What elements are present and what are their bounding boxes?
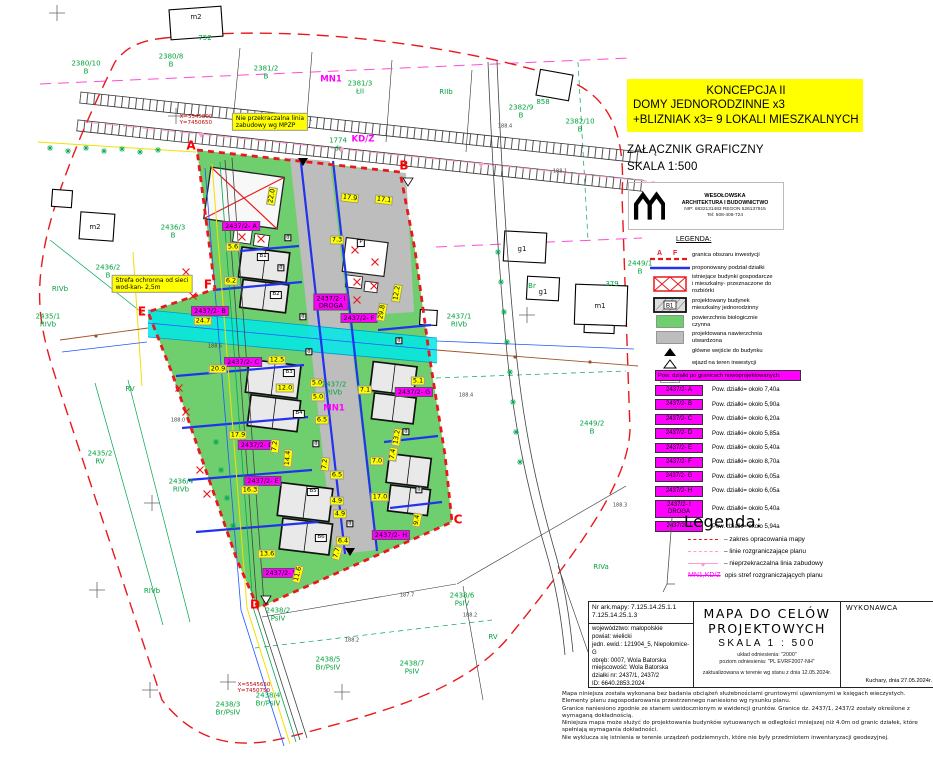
concept-line-2: DOMY JEDNORODZINNE x3 [633, 98, 859, 112]
map-title-line2: PROJEKTOWYCH [694, 621, 840, 636]
plan-delimiting-line-icon [688, 551, 718, 552]
legend-item-division: proponowany podział działki [648, 264, 813, 272]
plot-area-text: Pow. działki= około 5,85a [712, 431, 780, 437]
legend-item-boundary: A F granica obszaru inwestycji [648, 248, 813, 262]
plot-area-row: 2437/2- APow. działki= około 7,40a [655, 385, 835, 396]
plan-legend-item: – nieprzekraczalna linia zabudowy [688, 560, 912, 567]
legend-item-bio: powierzchnia biologicznie czynna [648, 315, 813, 329]
legend-item-text: granica obszaru inwestycji [692, 252, 760, 259]
plot-area-text: Pow. działki= około 6,05a [712, 488, 780, 494]
disclaimer-line: Nie wyklucza się istnienia w terenie urz… [562, 735, 933, 742]
legend-item-access: wjazd na teren inwestycji [648, 359, 813, 369]
plot-id-badge: 2437/2- D [655, 428, 703, 439]
plot-area-text: Pow. działki= około 5,40a [712, 445, 780, 451]
legend-item-text: istniejące budynki gospodarcze i mieszka… [692, 274, 773, 295]
update-note: zaktualizowana w terenie wg stanu z dnia… [694, 670, 840, 676]
boundary-symbol-icon: A F [648, 248, 692, 262]
map-scope-line-icon [688, 539, 718, 540]
plot-area-text: Pow. działki= około 7,40a [712, 387, 780, 393]
plot-area-row: 2437/2- CPow. działki= około 6,20a [655, 414, 835, 425]
map-sheet-number: Nr ark.mapy: 7.125.14.25.1.1 7.125.14.25… [589, 602, 693, 624]
legend-item-text: projektowana nawierzchnia utwardzona [692, 331, 762, 345]
disclaimer-line: Niniejsza mapa może służyć do projektowa… [562, 720, 933, 735]
concept-line-3: +BLIZNIAK x3= 9 LOKALI MIESZKALNYCH [633, 113, 859, 127]
access-symbol-icon [648, 359, 692, 369]
concept-line-1: KONCEPCJA II [633, 84, 859, 98]
demolish-symbol-icon [648, 276, 692, 292]
svg-text:A: A [657, 250, 662, 257]
place-and-date: Kuchary, dnia 27.05.2024r. [866, 678, 932, 684]
firm-stamp: WESOŁOWSKA ARCHITEKTURA I BUDOWNICTWO NI… [628, 182, 784, 230]
firm-logo-icon [631, 190, 665, 222]
attachment-title: ZAŁĄCZNIK GRAFICZNY SKALA 1:500 [627, 142, 764, 175]
title-block-right: WYKONAWCA Kuchary, dnia 27.05.2024r. [841, 602, 933, 687]
disclaimer-line: Mapa niniejsza została wykonana bez bada… [562, 691, 933, 698]
contractor-label: WYKONAWCA [846, 605, 898, 612]
legend-item-demolish: istniejące budynki gospodarcze i mieszka… [648, 274, 813, 295]
plot-area-row: 2437/2- HPow. działki= około 6,05a [655, 486, 835, 497]
map-disclaimer: Mapa niniejsza została wykonana bez bada… [562, 691, 933, 742]
concept-note: KONCEPCJA II DOMY JEDNORODZINNE x3 +BLIZ… [627, 79, 863, 132]
svg-text:F: F [673, 250, 678, 257]
disclaimer-line: Elementy planu zagospodarowania przestrz… [562, 698, 933, 705]
paved-symbol-icon [648, 331, 692, 344]
firm-line2: ARCHITEKTURA I BUDOWNICTWO [669, 200, 781, 207]
map-scale: SKALA 1 : 500 [694, 638, 840, 649]
plan-legend-text: – zakres opracowania mapy [724, 536, 805, 543]
plot-id-badge: 2437/2- G [655, 471, 703, 482]
plot-id-badge: 2437/2- E [655, 443, 703, 454]
plot-id-badge: 2437/2- C [655, 414, 703, 425]
plot-area-text: Pow. działki= około 6,05a [712, 474, 780, 480]
division-symbol-icon [648, 264, 692, 272]
legend-item-text: główne wejście do budynku [692, 348, 763, 355]
legend-item-text: wjazd na teren inwestycji [692, 360, 756, 367]
building-limit-line-icon [688, 563, 718, 564]
plot-areas-header: Pow. działki po granicach nowoprojektowa… [655, 370, 801, 381]
attachment-title-text: ZAŁĄCZNIK GRAFICZNY [627, 142, 764, 159]
plot-id-badge: 2437/2- F [655, 457, 703, 468]
legend-item-text: powierzchnia biologicznie czynna [692, 315, 758, 329]
survey-mark-icon [660, 516, 678, 596]
height-reference: poziom odniesienia: "PL EVRF2007-NH" [694, 659, 840, 666]
map-sheet-number-label: Nr ark.mapy: [592, 604, 629, 611]
zone-code: MN1,KD/Z [688, 572, 721, 579]
plan-legend: Legenda: – zakres opracowania mapy – lin… [662, 512, 912, 579]
plan-legend-title: Legenda: [684, 512, 912, 531]
legend-item-text: projektowany budynek mieszkalny jednorod… [692, 298, 758, 312]
firm-name: WESOŁOWSKA [669, 193, 781, 200]
entrance-symbol-icon [648, 347, 692, 357]
legend-item-text: proponowany podział działki [692, 265, 765, 272]
map-title-line1: MAPA DO CELÓW [694, 606, 840, 621]
plot-area-row: 2437/2- BPow. działki= około 5,90a [655, 399, 835, 410]
coordinate-system: układ odniesienia: "2000" [694, 652, 840, 659]
plot-area-text: Pow. działki= około 5,90a [712, 402, 780, 408]
plot-area-text: Pow. działki= około 8,70a [712, 459, 780, 465]
plan-legend-zone-row: MN1,KD/Z opis stref rozgraniczających pl… [688, 572, 912, 579]
firm-tel: Tel: 508-408-724 [669, 213, 781, 219]
attachment-scale: SKALA 1:500 [627, 159, 764, 176]
plan-legend-item: – linie rozgraniczające planu [688, 548, 912, 555]
plan-legend-text: – nieprzekraczalna linia zabudowy [724, 560, 823, 567]
legend-item-entrance: główne wejście do budynku [648, 347, 813, 357]
plan-legend-item: – zakres opracowania mapy [688, 536, 912, 543]
disclaimer-line: Granice naniesiono zgodnie ze stanem uwi… [562, 706, 933, 721]
plan-legend-text: – linie rozgraniczające planu [724, 548, 806, 555]
plot-area-row: 2437/2- GPow. działki= około 6,05a [655, 471, 835, 482]
title-block: Nr ark.mapy: 7.125.14.25.1.1 7.125.14.25… [588, 601, 933, 688]
plot-id-badge: 2437/2- H [655, 486, 703, 497]
svg-text:B1: B1 [666, 303, 674, 309]
plot-area-text: Pow. działki= około 6,20a [712, 416, 780, 422]
plan-legend-text: opis stref rozgraniczających planu [725, 572, 823, 579]
legend-item-projected: B1 projektowany budynek mieszkalny jedno… [648, 297, 813, 313]
title-block-center: MAPA DO CELÓW PROJEKTOWYCH SKALA 1 : 500… [694, 602, 841, 687]
plot-id-badge: 2437/2- A [655, 385, 703, 396]
title-block-left: Nr ark.mapy: 7.125.14.25.1.1 7.125.14.25… [589, 602, 694, 687]
plot-area-row: 2437/2- DPow. działki= około 5,85a [655, 428, 835, 439]
map-sheet: ABCDEF2437/2- A2437/2- B2437/2- I DROGA2… [0, 0, 933, 768]
plot-area-row: 2437/2- FPow. działki= około 8,70a [655, 457, 835, 468]
legend: LEGENDA: A F granica obszaru inwestycji … [648, 236, 813, 385]
location-details: województwo: małopolskie powiat: wielick… [589, 624, 693, 688]
bio-symbol-icon [648, 315, 692, 328]
legend-item-paved: projektowana nawierzchnia utwardzona [648, 331, 813, 345]
plot-area-row: 2437/2- EPow. działki= około 5,40a [655, 443, 835, 454]
plot-id-badge: 2437/2- B [655, 399, 703, 410]
projected-symbol-icon: B1 [648, 297, 692, 313]
legend-title: LEGENDA: [676, 236, 813, 243]
